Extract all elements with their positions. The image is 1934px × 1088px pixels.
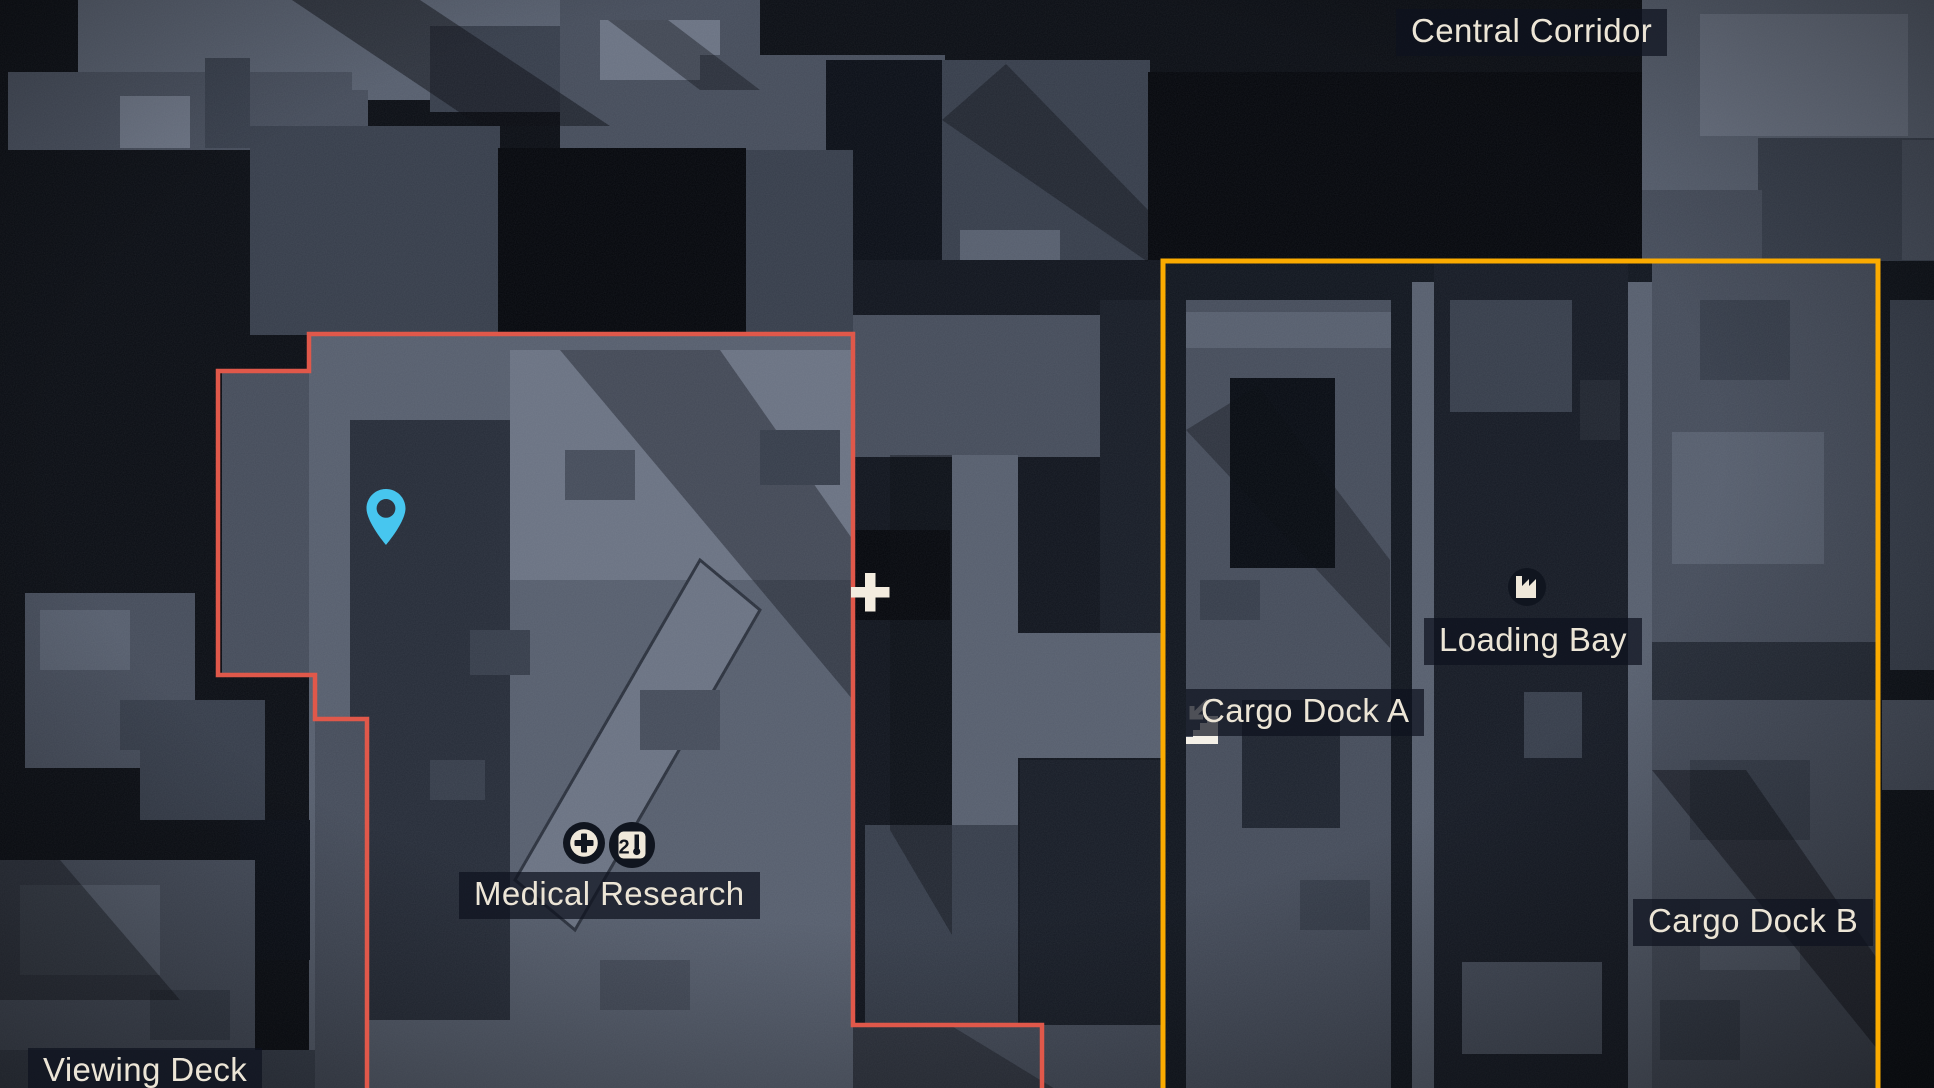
- research-terminal-icon[interactable]: 2: [609, 822, 655, 868]
- zone-label-cargo-dock-b: Cargo Dock B: [1633, 899, 1873, 946]
- zone-label-loading-bay: Loading Bay: [1424, 618, 1642, 665]
- zone-label-cargo-dock-a: Cargo Dock A: [1186, 689, 1424, 736]
- zone-label-viewing-deck: Viewing Deck: [28, 1048, 262, 1088]
- zone-label-medical-research: Medical Research: [459, 872, 760, 919]
- medical-cross-icon[interactable]: [563, 822, 605, 864]
- factory-icon[interactable]: [1508, 568, 1546, 606]
- research-terminal-glyph: 2: [618, 837, 629, 859]
- zone-label-central-corridor: Central Corridor: [1396, 9, 1667, 56]
- tactical-map-screen: 2 Central Corridor Medical Resea: [0, 0, 1934, 1088]
